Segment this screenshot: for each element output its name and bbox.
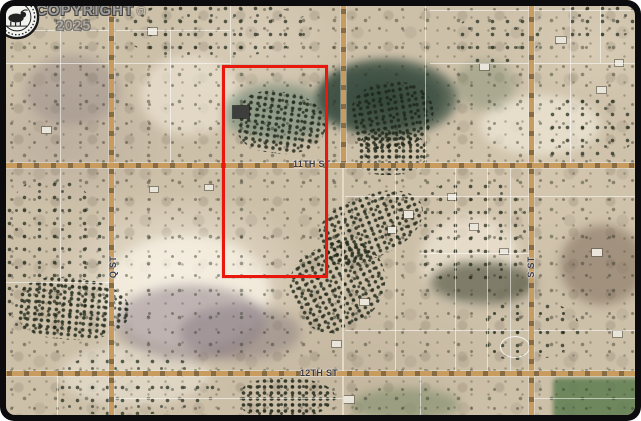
road-mid-south (342, 168, 344, 415)
copyright-year: 2025 (56, 17, 91, 33)
road-s-st (529, 6, 534, 415)
parcel-line (113, 398, 343, 399)
building (360, 299, 369, 305)
riding-track (500, 336, 530, 358)
building (150, 187, 158, 192)
street-label-q-st: Q ST (108, 247, 118, 287)
parcel-line (425, 6, 426, 168)
parcel-line (60, 168, 61, 282)
parcel-line (510, 168, 511, 376)
property-outline (222, 65, 328, 278)
parcel-line (600, 6, 601, 63)
realtor-board-seal-icon (6, 6, 40, 40)
photo-frame: 11TH ST 12TH ST Q ST S ST COPYRIGHT© 202… (0, 0, 641, 421)
parcel-line (6, 63, 230, 64)
parcel-line (420, 253, 533, 254)
building (205, 185, 213, 190)
parcel-line (170, 30, 171, 166)
parcel-line (395, 168, 396, 376)
parcel-line (345, 330, 635, 331)
parcel-line (455, 168, 456, 376)
parcel-line (487, 168, 488, 376)
building (404, 211, 413, 218)
building (42, 127, 51, 133)
parcel-line (570, 6, 571, 168)
building (343, 396, 354, 403)
building (480, 64, 489, 70)
road-mid-north (341, 6, 346, 166)
parcel-line (533, 398, 635, 399)
map-world: 11TH ST 12TH ST Q ST S ST COPYRIGHT© 202… (6, 6, 635, 415)
parcel-line (345, 196, 635, 197)
road-q-st (109, 6, 114, 415)
parcel-line (230, 6, 231, 65)
building (597, 87, 606, 93)
copyright-symbol-icon: © (137, 6, 146, 18)
tree-cluster (240, 378, 335, 415)
building (592, 249, 602, 256)
building (613, 331, 622, 337)
parcel-line (6, 282, 109, 283)
building (556, 37, 566, 43)
street-label-12th-st: 12TH ST (300, 368, 338, 378)
parcel-line (420, 376, 421, 415)
street-label-s-st: S ST (526, 247, 536, 287)
aerial-map-image: 11TH ST 12TH ST Q ST S ST COPYRIGHT© 202… (6, 6, 635, 415)
building (470, 224, 478, 230)
parcel-line (57, 376, 58, 415)
building (332, 341, 341, 347)
